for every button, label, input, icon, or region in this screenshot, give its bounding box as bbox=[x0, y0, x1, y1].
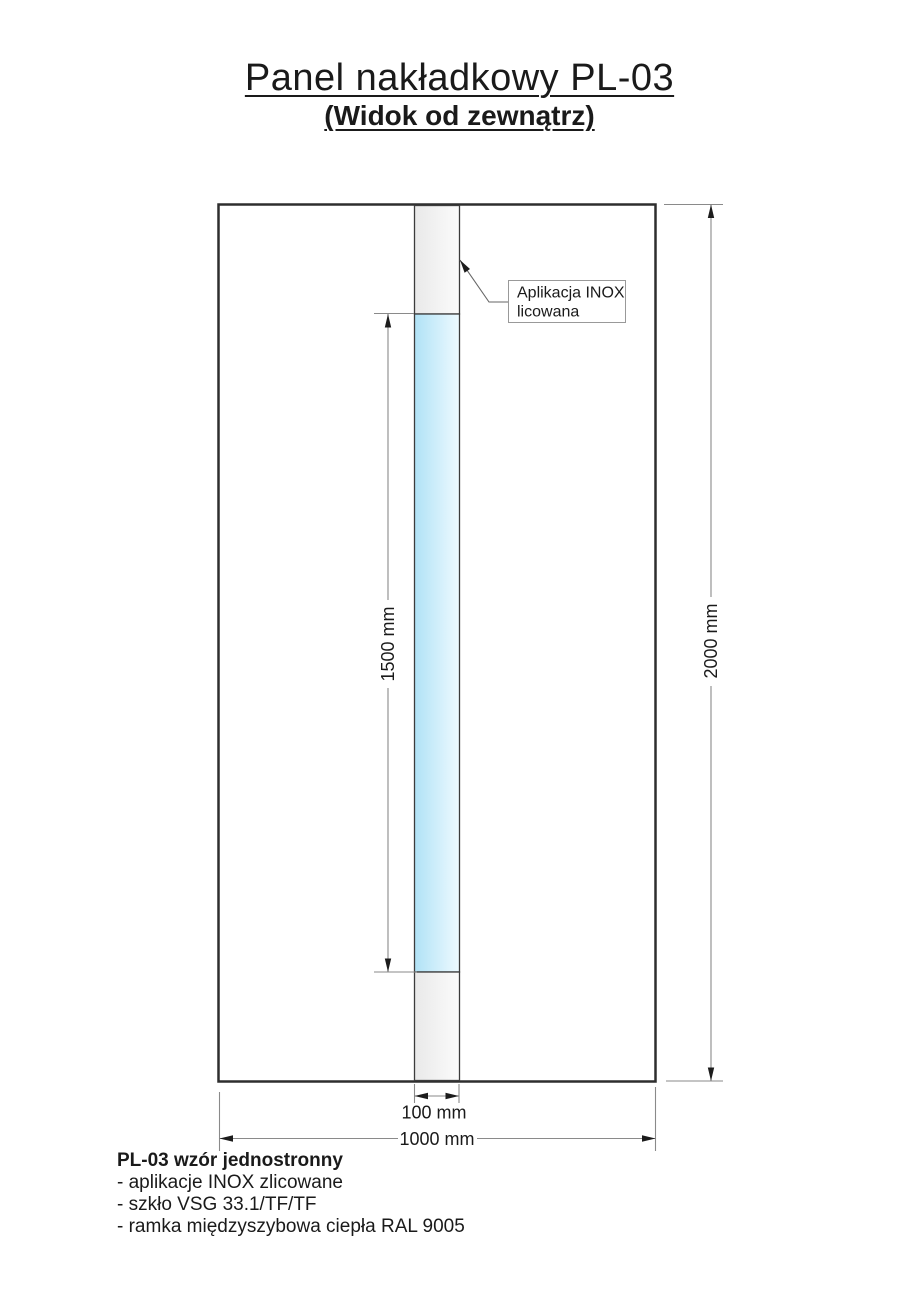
inox-strip-top bbox=[415, 206, 460, 315]
spec-note-item: - aplikacje INOX zlicowane bbox=[117, 1172, 465, 1194]
arrow-right-icon bbox=[642, 1135, 656, 1141]
dim-panel-height-label: 2000 mm bbox=[701, 603, 721, 678]
arrow-down-icon bbox=[708, 1068, 714, 1082]
spec-notes: PL-03 wzór jednostronny - aplikacje INOX… bbox=[117, 1150, 465, 1238]
spec-note-item: - szkło VSG 33.1/TF/TF bbox=[117, 1194, 465, 1216]
panel-drawing: 1500 mm 2000 mm 100 mm bbox=[0, 0, 919, 1300]
glass-strip bbox=[415, 314, 460, 972]
arrow-up-icon bbox=[708, 205, 714, 219]
arrow-right-icon bbox=[446, 1093, 460, 1099]
arrow-left-icon bbox=[220, 1135, 234, 1141]
technical-drawing-page: Panel nakładkowy PL-03 (Widok od zewnątr… bbox=[0, 0, 919, 1300]
spec-note-item: - ramka międzyszybowa ciepła RAL 9005 bbox=[117, 1216, 465, 1238]
callout-text-line1: Aplikacja INOX bbox=[517, 285, 625, 302]
dim-strip-height-label: 1500 mm bbox=[378, 606, 398, 681]
dim-panel-width-label: 1000 mm bbox=[399, 1129, 474, 1149]
dimension-panel-height: 2000 mm bbox=[664, 205, 723, 1082]
dim-strip-width-label: 100 mm bbox=[401, 1103, 466, 1123]
callout-text-line2: licowana bbox=[517, 304, 579, 321]
arrow-left-icon bbox=[415, 1093, 429, 1099]
inox-strip-bottom bbox=[415, 972, 460, 1081]
spec-notes-heading: PL-03 wzór jednostronny bbox=[117, 1150, 465, 1172]
dimension-strip-width: 100 mm bbox=[401, 1084, 466, 1123]
